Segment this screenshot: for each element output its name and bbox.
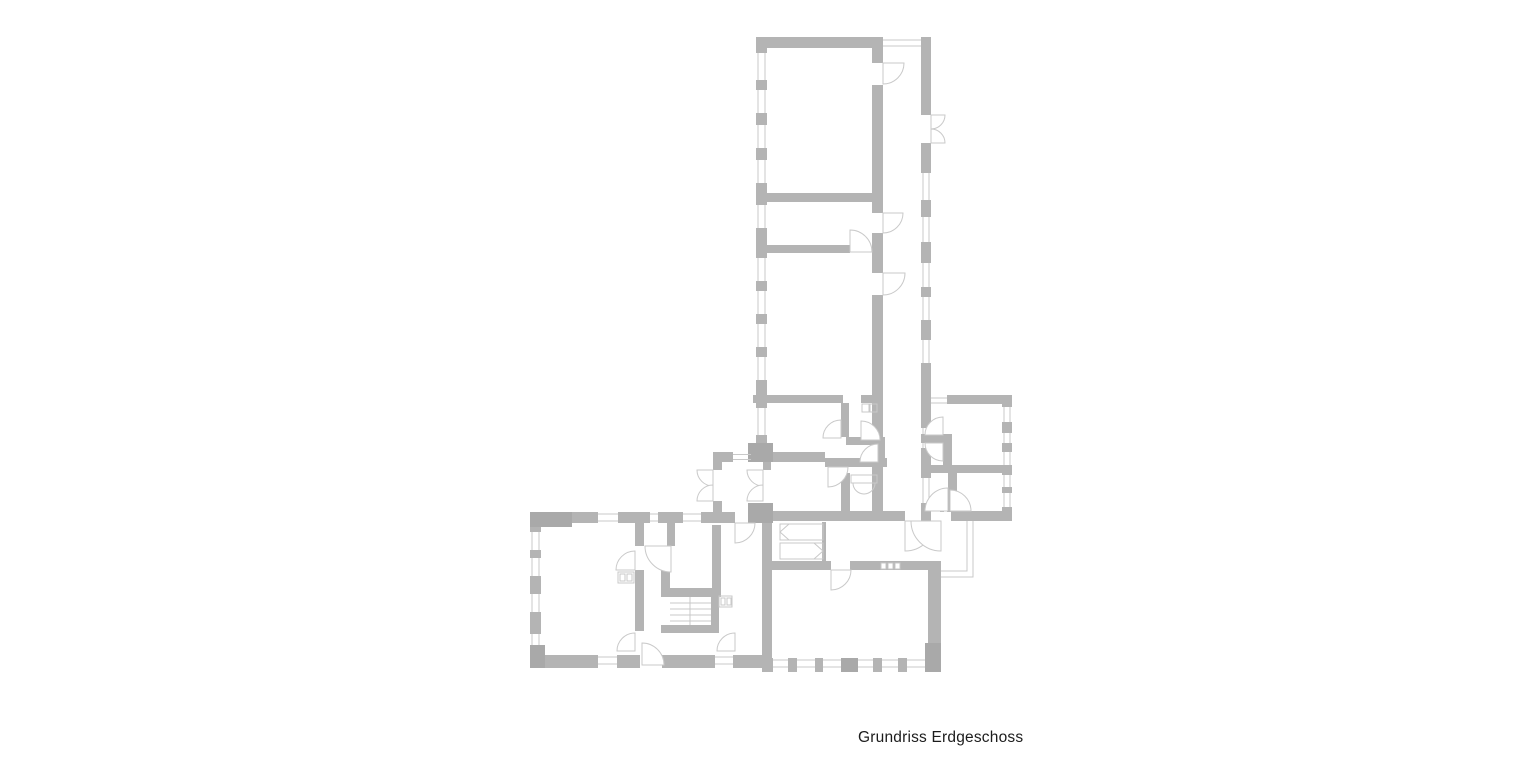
south-entrance-double-doors xyxy=(905,521,941,551)
radiator-icon xyxy=(719,596,732,607)
door-swing-icon xyxy=(697,470,713,486)
door-swing-icon xyxy=(925,488,948,511)
north-top-wall xyxy=(756,37,883,48)
door-swing-icon xyxy=(617,633,635,651)
door-swing-icon xyxy=(860,444,878,462)
door-swing-icon xyxy=(642,643,664,665)
radiator-icon xyxy=(618,572,634,583)
wardrobe-icon xyxy=(780,524,823,540)
wing-north xyxy=(753,37,945,521)
south-left-wall xyxy=(762,523,772,668)
vestibule-double-doors xyxy=(697,470,763,501)
door-swing-icon xyxy=(697,485,713,501)
wardrobe-icon xyxy=(780,543,823,559)
entrance-steps xyxy=(941,521,973,577)
door-swing-icon xyxy=(850,230,872,252)
wing-east xyxy=(921,395,1012,521)
balcony-door-leaf-icon xyxy=(931,129,945,143)
door-swing-icon xyxy=(645,546,671,572)
wardrobes xyxy=(780,524,823,559)
floor-plan-sheet: Grundriss Erdgeschoss xyxy=(0,0,1540,770)
door-swing-icon xyxy=(831,570,851,590)
door-swing-icon xyxy=(735,523,755,543)
east-top-opening xyxy=(931,398,947,403)
balcony-door-leaf-icon xyxy=(931,115,945,129)
south-interior-walls xyxy=(762,522,928,570)
drawing-caption: Grundriss Erdgeschoss xyxy=(858,729,1023,747)
south-bottom-piers xyxy=(841,643,941,672)
door-swing-icon xyxy=(747,470,763,486)
door-swing-icon xyxy=(883,63,904,84)
door-swing-icon xyxy=(717,633,735,651)
floor-plan-drawing xyxy=(0,0,1540,770)
staircase xyxy=(670,597,711,625)
door-swing-icon xyxy=(883,273,905,295)
door-swing-icon xyxy=(616,551,635,570)
door-swing-icon xyxy=(950,490,971,511)
stair-treads-icon xyxy=(670,597,711,625)
sw-interior-walls xyxy=(635,523,721,633)
door-swing-icon xyxy=(883,213,903,233)
wall-vent-icon xyxy=(881,563,900,569)
north-top-glazing xyxy=(883,40,921,46)
door-swing-icon xyxy=(747,485,763,501)
door-swing-icon xyxy=(823,420,841,438)
exterior-steps-icon xyxy=(941,521,973,577)
wing-southwest xyxy=(530,512,762,668)
spine-wall xyxy=(735,506,1002,551)
